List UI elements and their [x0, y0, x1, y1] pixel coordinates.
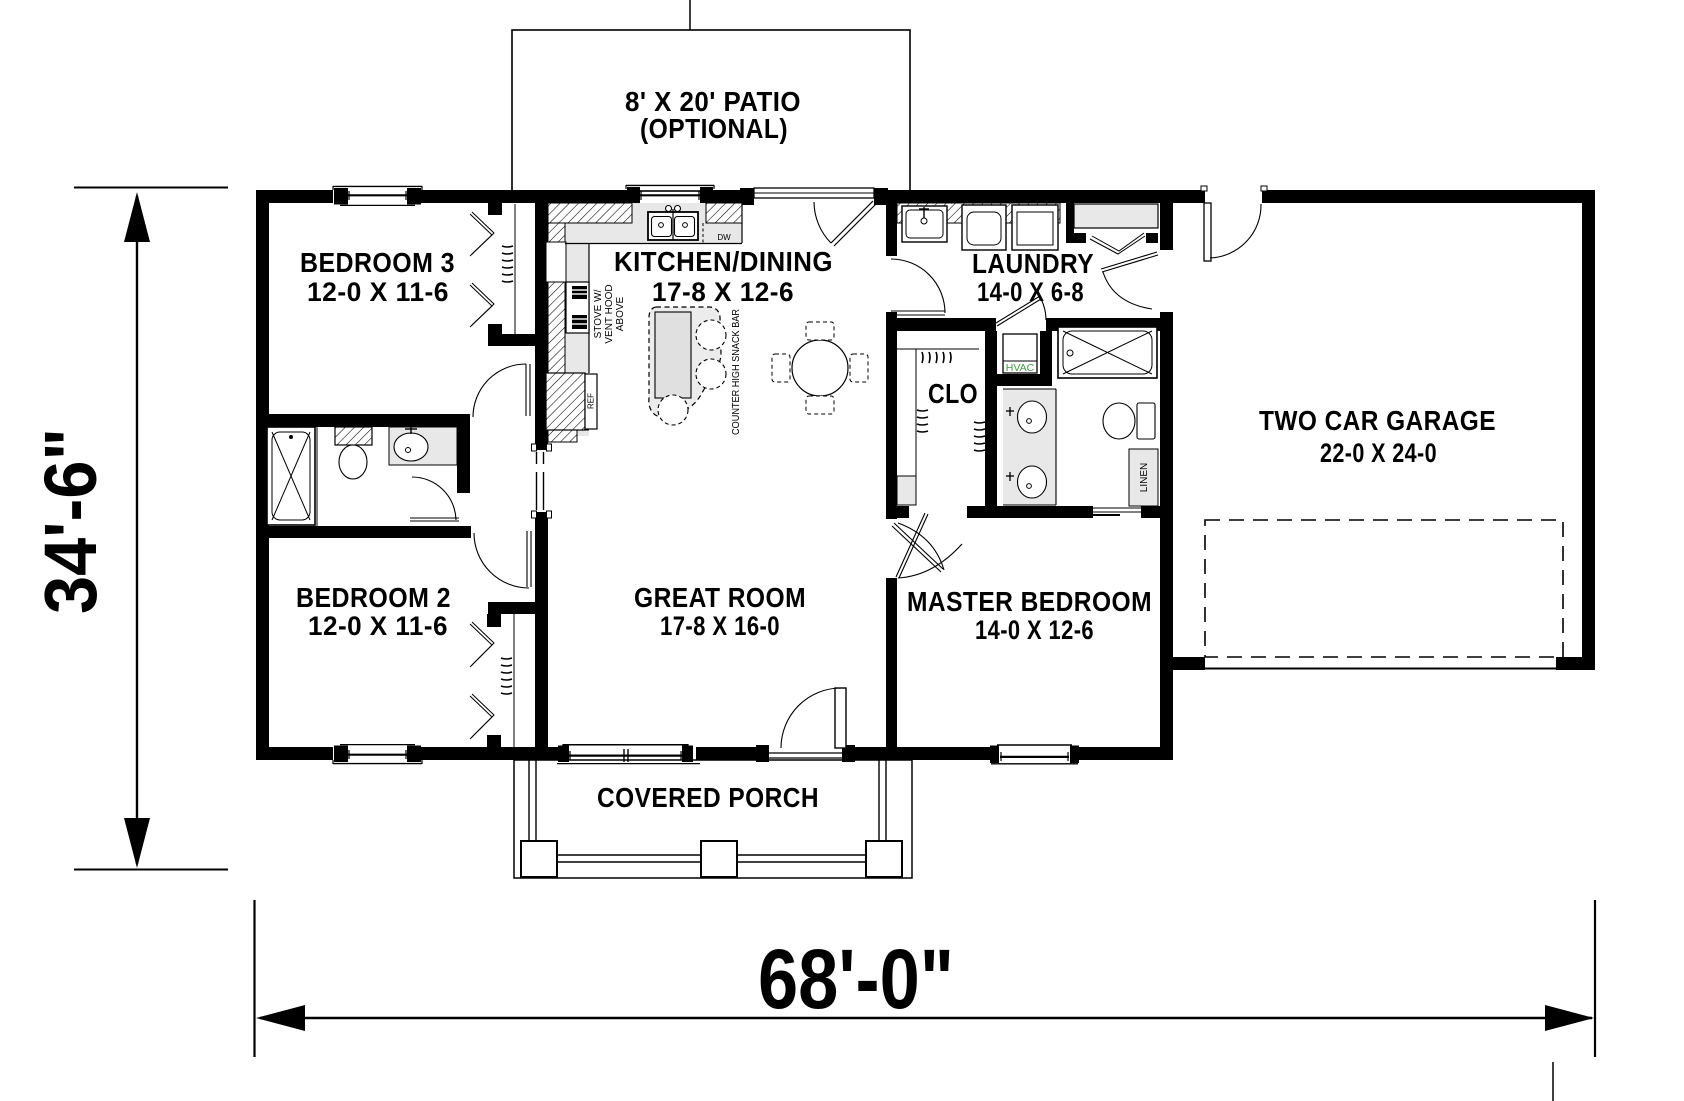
svg-text:LINEN: LINEN — [1139, 463, 1150, 492]
svg-text:CLO: CLO — [928, 378, 978, 409]
svg-text:COVERED PORCH: COVERED PORCH — [597, 782, 819, 813]
svg-text:68'-0": 68'-0" — [758, 932, 954, 1026]
svg-text:BEDROOM 2: BEDROOM 2 — [296, 582, 451, 613]
svg-text:TWO CAR GARAGE: TWO CAR GARAGE — [1259, 405, 1496, 436]
svg-text:12-0 X 11-6: 12-0 X 11-6 — [308, 611, 448, 641]
svg-text:VENT HOOD: VENT HOOD — [604, 284, 615, 343]
svg-text:ABOVE: ABOVE — [615, 296, 626, 331]
svg-text:MASTER BEDROOM: MASTER BEDROOM — [907, 586, 1152, 617]
svg-text:HVAC: HVAC — [1006, 362, 1035, 374]
svg-text:COUNTER HIGH SNACK BAR: COUNTER HIGH SNACK BAR — [731, 309, 742, 435]
svg-text:12-0 X 11-6: 12-0 X 11-6 — [307, 277, 449, 307]
svg-text:KITCHEN/DINING: KITCHEN/DINING — [614, 246, 833, 277]
svg-text:34'-6": 34'-6" — [29, 428, 112, 614]
svg-text:17-8 X 16-0: 17-8 X 16-0 — [660, 611, 780, 641]
svg-text:14-0 X 12-6: 14-0 X 12-6 — [975, 615, 1094, 645]
svg-text:DW: DW — [717, 233, 731, 242]
svg-text:22-0 X 24-0: 22-0 X 24-0 — [1320, 438, 1437, 468]
svg-text:GREAT ROOM: GREAT ROOM — [634, 582, 806, 613]
svg-text:BEDROOM 3: BEDROOM 3 — [300, 247, 455, 278]
svg-text:17-8 X 12-6: 17-8 X 12-6 — [652, 277, 794, 307]
svg-text:(OPTIONAL): (OPTIONAL) — [640, 113, 788, 144]
svg-text:STOVE W/: STOVE W/ — [593, 289, 604, 338]
svg-text:14-0 X 6-8: 14-0 X 6-8 — [977, 277, 1084, 307]
svg-text:LAUNDRY: LAUNDRY — [972, 248, 1094, 279]
svg-text:REF: REF — [587, 393, 596, 409]
